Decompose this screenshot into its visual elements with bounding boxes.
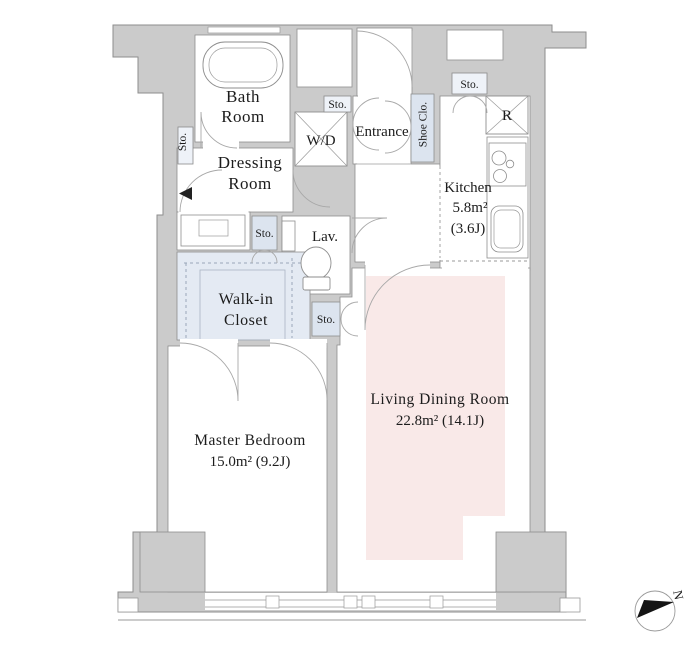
balcony-end-stub-right	[560, 598, 580, 612]
shoe-closet-label: Shoe Clo.	[418, 102, 430, 147]
pillar-bottom-right	[496, 532, 566, 592]
dressing-label-1: Dressing	[218, 153, 282, 172]
storage-badge-kitchen: Sto.	[452, 73, 487, 94]
pillar-bottom-left	[140, 532, 205, 592]
north-arrow-icon: N	[635, 589, 687, 631]
bathtub-icon	[203, 42, 283, 88]
north-label: N	[670, 589, 687, 602]
window-mullion-4	[430, 596, 443, 608]
kitchen-ldk-merge	[442, 264, 528, 272]
lav-basin-icon	[282, 221, 295, 251]
storage-badge-bath-left: Sto.	[177, 127, 193, 164]
bath-label-2: Room	[221, 107, 265, 126]
kitchen-label-tatami: (3.6J)	[451, 221, 486, 237]
svg-text:Sto.: Sto.	[328, 99, 346, 111]
meter-box	[297, 29, 352, 87]
window-mullion-2	[344, 596, 357, 608]
stove-icon	[489, 143, 526, 186]
kitchen-label-sqm: 5.8m²	[453, 200, 488, 216]
shaft-box-top-right	[447, 30, 503, 60]
room-corridor	[355, 164, 440, 262]
wic-label-2: Closet	[224, 312, 268, 329]
toilet-icon	[301, 247, 331, 290]
bedroom-label-name: Master Bedroom	[194, 432, 306, 449]
window-mullion-3	[362, 596, 375, 608]
window-mullion-1	[266, 596, 279, 608]
balcony-end-stub-left	[118, 598, 138, 612]
bath-label-1: Bath	[226, 87, 260, 106]
lavatory-label: Lav.	[312, 229, 338, 245]
vanity-icon	[181, 215, 245, 246]
sink-icon	[491, 206, 523, 252]
ldk-label-area: 22.8m² (14.1J)	[396, 413, 484, 429]
wd-label: W/D	[306, 133, 335, 149]
floor-plan: Sto. Sto. Sto. Sto. Sto. Shoe Clo. Bath …	[0, 0, 700, 650]
entrance-doorway-merge	[358, 92, 411, 100]
wic-label-1: Walk-in	[219, 291, 274, 308]
refrigerator-label: R	[502, 108, 512, 124]
bath-window-slit	[208, 27, 280, 33]
bedroom-label-area: 15.0m² (9.2J)	[210, 454, 291, 470]
storage-label-lav: Sto.	[317, 314, 335, 326]
storage-badge-wd: Sto.	[324, 96, 351, 112]
storage-label-middle: Sto.	[255, 228, 273, 240]
entrance-label: Entrance	[355, 124, 409, 140]
svg-text:Sto.: Sto.	[177, 133, 189, 151]
kitchen-label-name: Kitchen	[444, 180, 492, 196]
dressing-label-2: Room	[228, 174, 272, 193]
svg-text:Sto.: Sto.	[460, 79, 478, 91]
living-area-tint-lower	[366, 516, 463, 560]
ldk-label-name: Living Dining Room	[370, 391, 509, 408]
